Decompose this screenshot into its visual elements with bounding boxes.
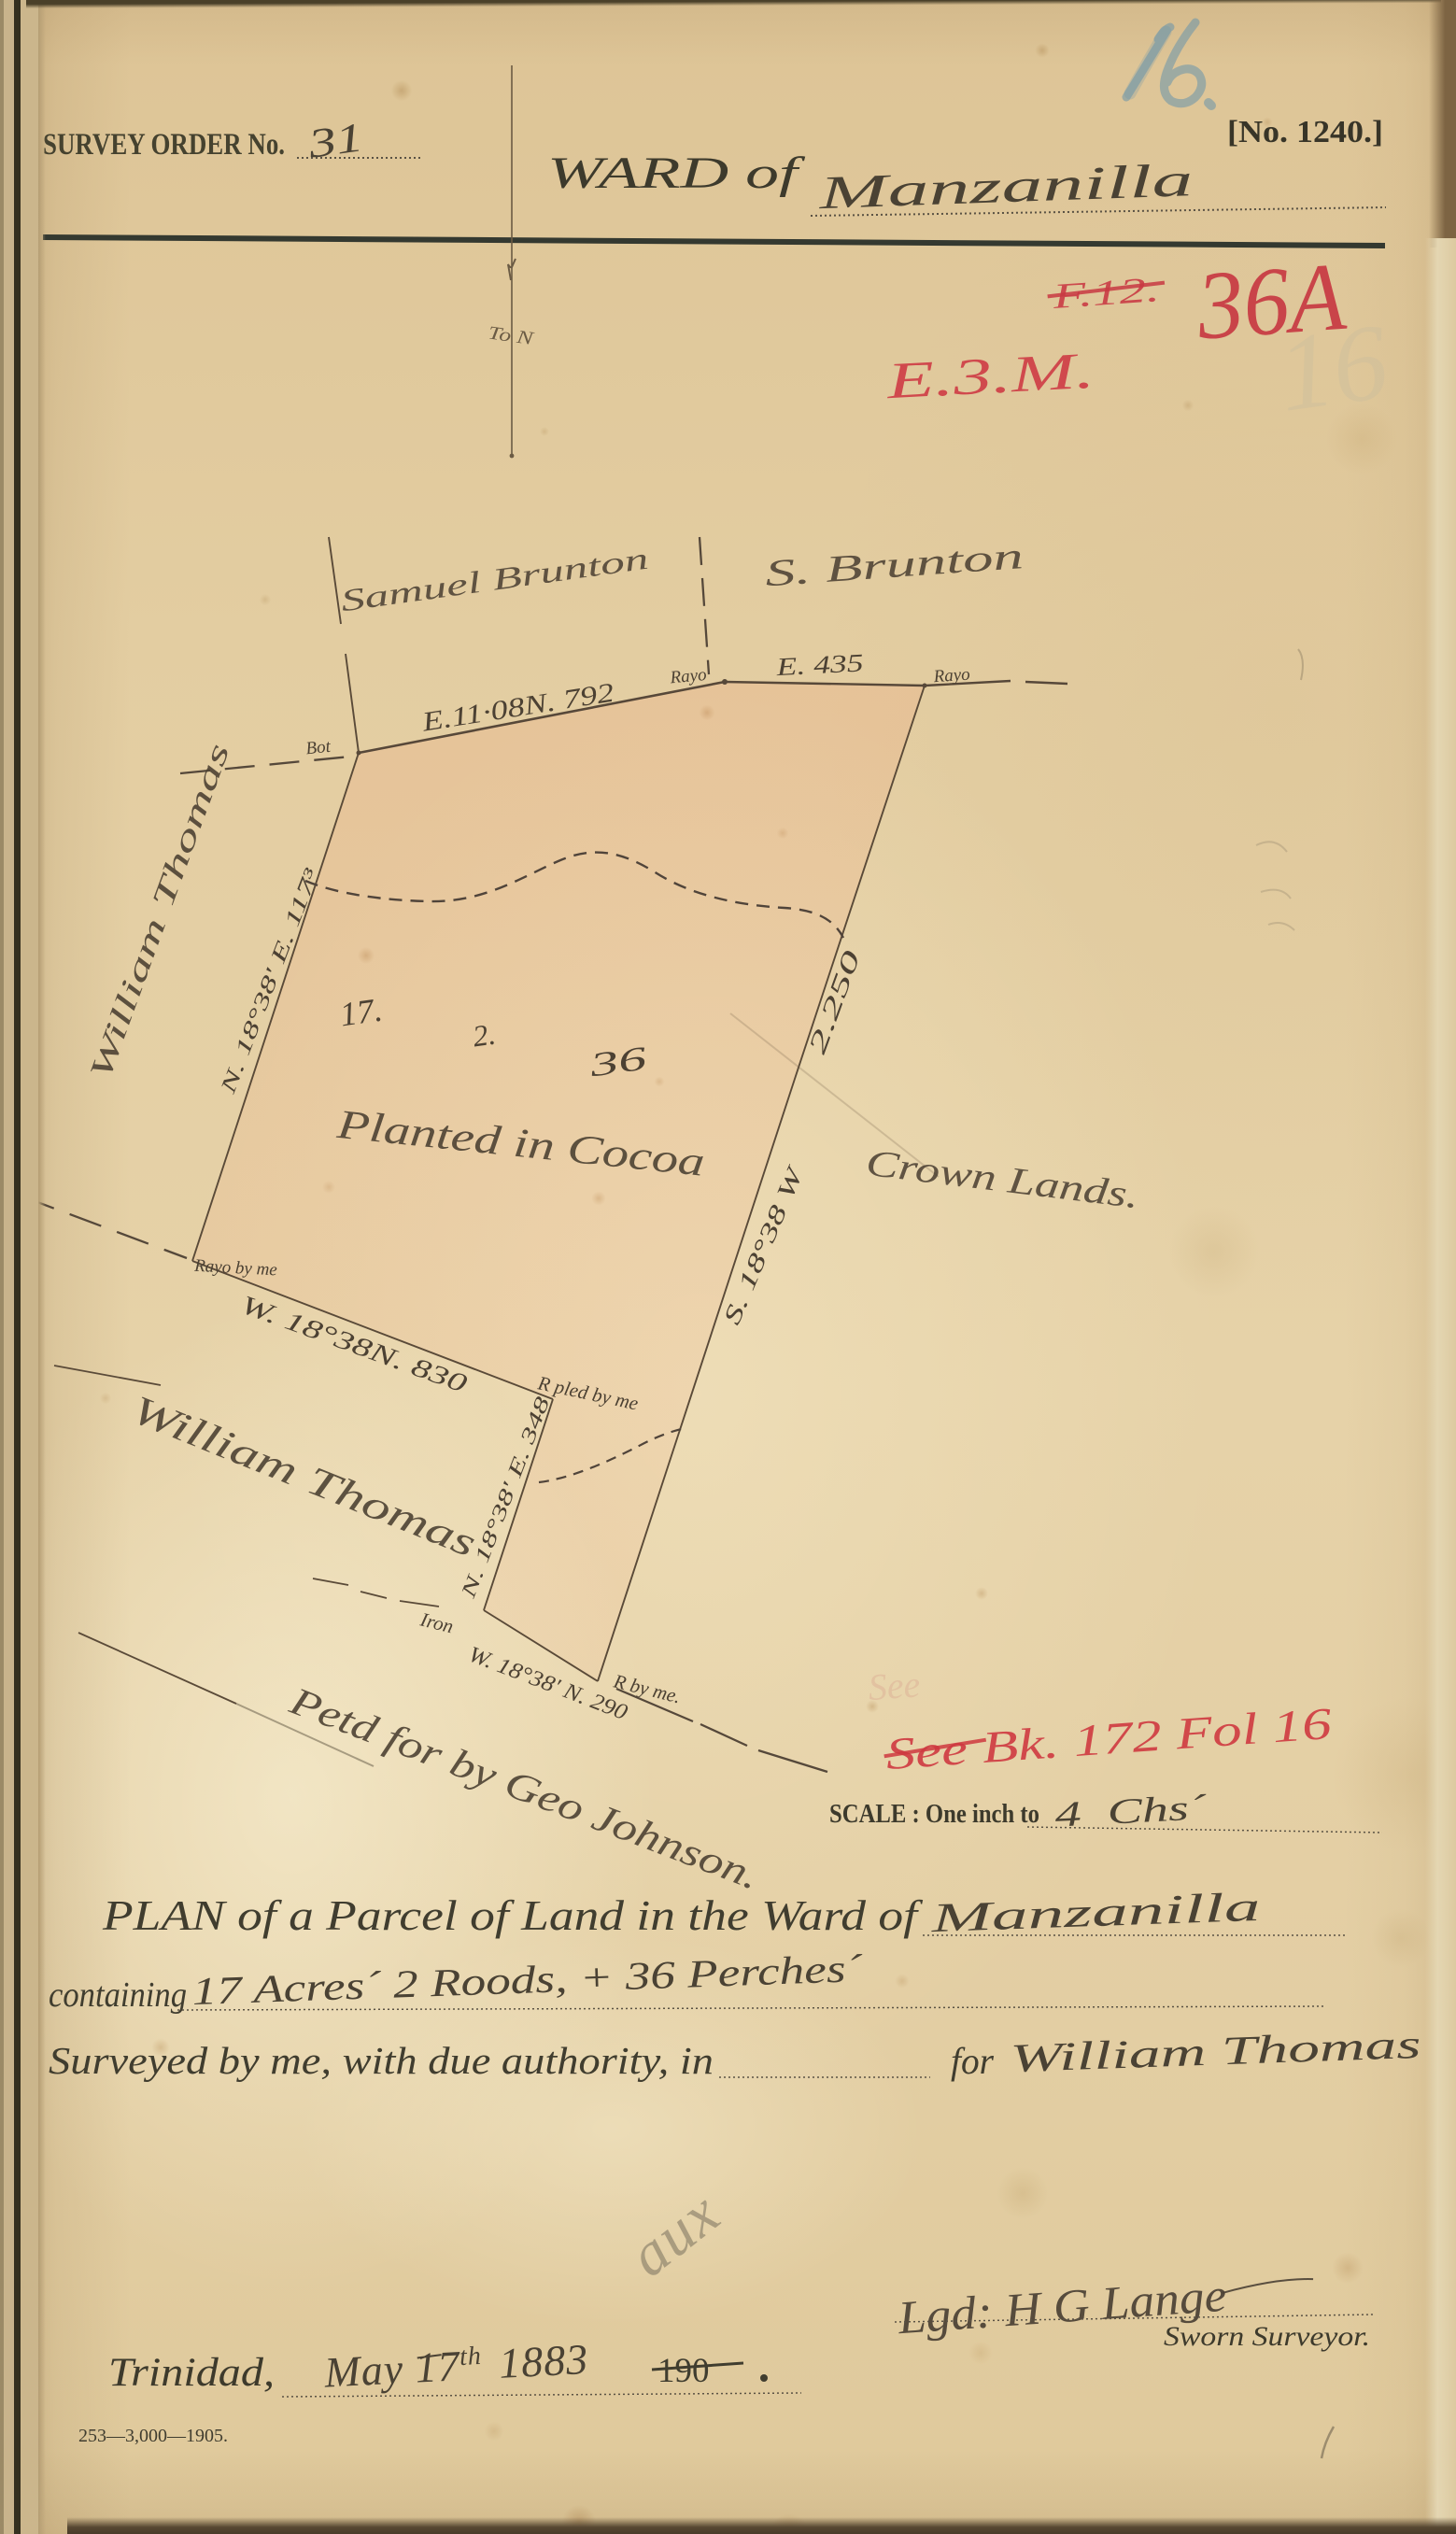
svg-text:aux: aux	[616, 2178, 733, 2290]
svg-text:WARD of: WARD of	[547, 149, 805, 198]
svg-text:To N: To N	[487, 322, 536, 349]
svg-text:Rayo by me: Rayo by me	[193, 1256, 278, 1281]
svg-text:Surveyed by me, with due autho: Surveyed by me, with due authority, in	[49, 2039, 714, 2082]
svg-text:[No. 1240.]: [No. 1240.]	[1227, 115, 1383, 149]
svg-text:17.: 17.	[338, 991, 385, 1034]
svg-text:190: 190	[657, 2352, 710, 2390]
svg-text:Iron: Iron	[417, 1607, 456, 1637]
svg-text:E.3.M.: E.3.M.	[884, 342, 1096, 410]
svg-text:Sworn Surveyor.: Sworn Surveyor.	[1164, 2321, 1370, 2352]
svg-text:William Thomas: William Thomas	[125, 1388, 482, 1566]
svg-text:Petd for by Geo Johnson.: Petd for by Geo Johnson.	[283, 1679, 765, 1899]
svg-text:16: 16	[1271, 302, 1395, 435]
svg-text:253—3,000—1905.: 253—3,000—1905.	[78, 2426, 228, 2446]
svg-text:Rayo: Rayo	[669, 665, 708, 687]
svg-text:William Thomas: William Thomas	[1010, 2023, 1421, 2081]
svg-text:Crown Lands.: Crown Lands.	[864, 1141, 1141, 1216]
svg-text:Manzanilla: Manzanilla	[817, 153, 1194, 219]
svg-text:containing: containing	[49, 1975, 187, 2015]
svg-text:Rayo: Rayo	[932, 665, 970, 687]
svg-text:William Thomas: William Thomas	[84, 739, 237, 1083]
svg-text:2.: 2.	[471, 1016, 498, 1053]
svg-text:for: for	[951, 2040, 994, 2082]
svg-text:Samuel Brunton: Samuel Brunton	[339, 543, 651, 619]
svg-text:E. 435: E. 435	[774, 648, 864, 681]
svg-text:S. Brunton: S. Brunton	[764, 534, 1025, 594]
svg-text:PLAN of a Parcel of Land in th: PLAN of a Parcel of Land in the Ward of	[102, 1892, 924, 1939]
svg-text:See Bk. 172 Fol 16: See Bk. 172 Fol 16	[884, 1699, 1334, 1779]
svg-text:Trinidad,: Trinidad,	[108, 2351, 275, 2395]
svg-text:Bot: Bot	[304, 737, 332, 759]
svg-text:Manzanilla: Manzanilla	[929, 1884, 1261, 1941]
svg-text:See: See	[867, 1663, 922, 1708]
svg-text:SURVEY ORDER No.: SURVEY ORDER No.	[43, 128, 285, 162]
svg-text:17 Acres´ 2 Roods, + 36 Perche: 17 Acres´ 2 Roods, + 36 Perches´	[191, 1947, 864, 2014]
svg-text:SCALE : One inch to: SCALE : One inch to	[829, 1800, 1039, 1829]
svg-text:May 17th1883: May 17th1883	[322, 2335, 589, 2397]
svg-text:31: 31	[304, 114, 366, 167]
svg-text:36: 36	[587, 1040, 649, 1084]
